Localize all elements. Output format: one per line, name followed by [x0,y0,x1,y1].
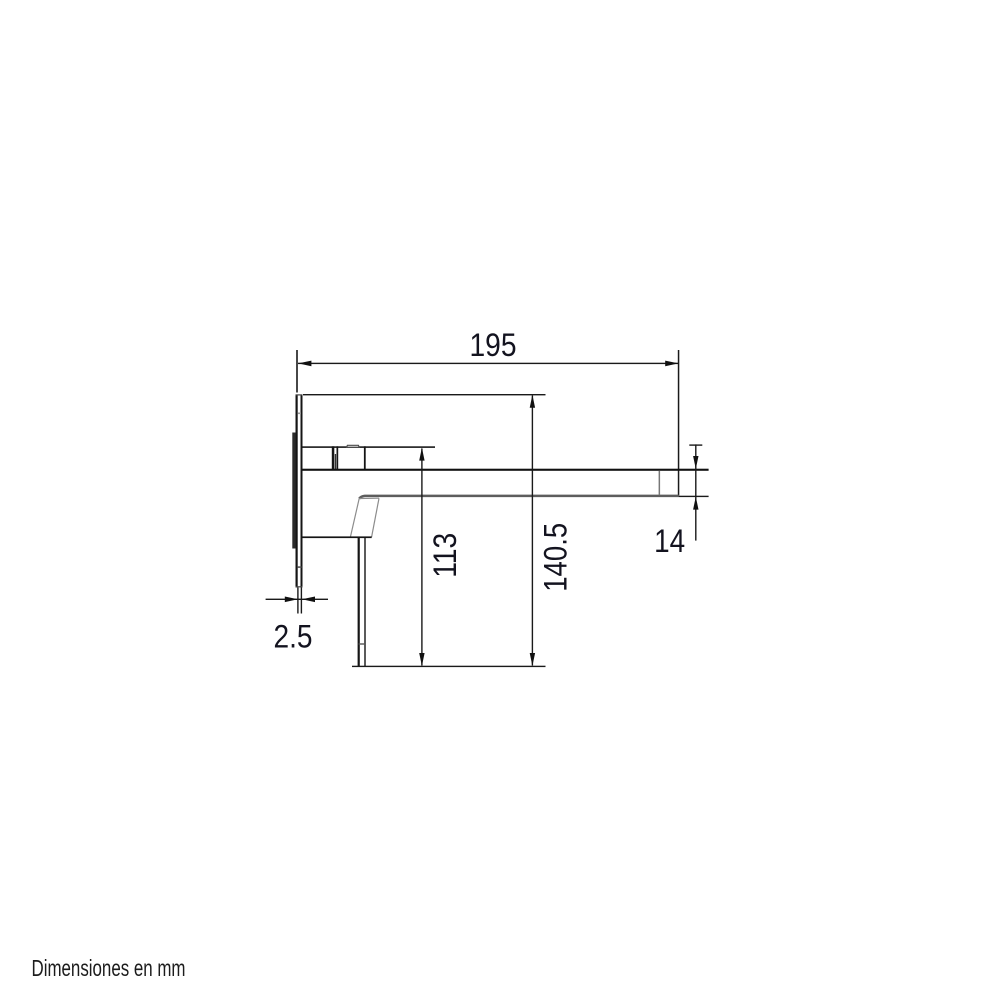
svg-text:14: 14 [654,523,685,559]
svg-text:Dimensiones en mm: Dimensiones en mm [32,955,186,981]
svg-text:2.5: 2.5 [274,619,313,655]
svg-text:140.5: 140.5 [537,523,573,592]
svg-text:113: 113 [427,533,463,578]
svg-text:195: 195 [470,327,517,363]
